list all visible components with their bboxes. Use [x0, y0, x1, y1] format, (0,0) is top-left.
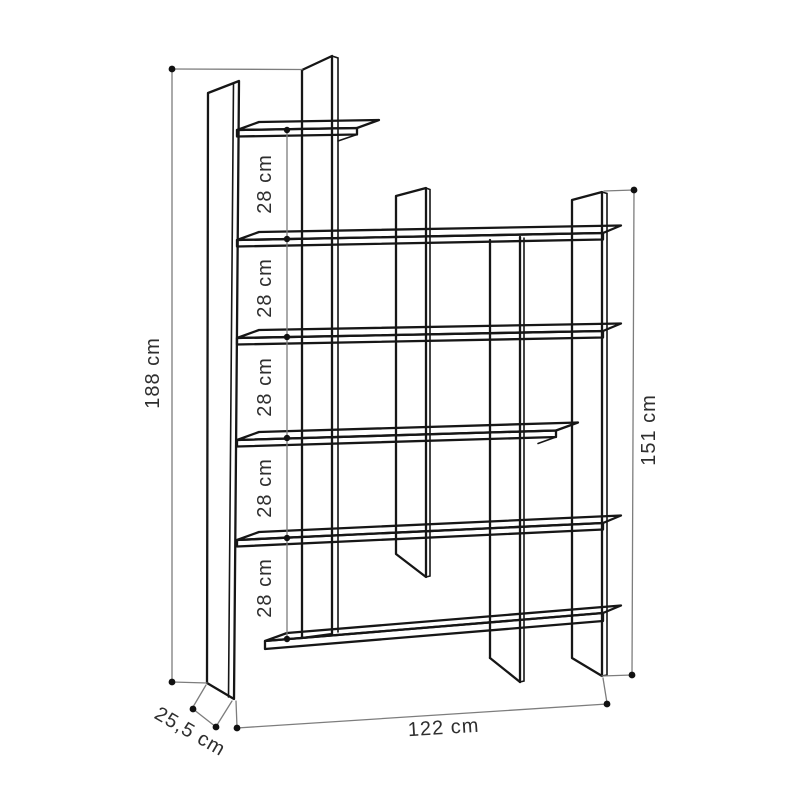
- dimension-dot: [213, 724, 220, 731]
- label-shelf-gap-4: 28 cm: [254, 458, 276, 517]
- shelf-row-4: [237, 423, 578, 447]
- dimension-dot: [284, 236, 290, 242]
- dimension-dot: [190, 706, 197, 713]
- dimension-dot: [284, 636, 290, 642]
- dimension-dot: [284, 334, 290, 340]
- label-right-height: 151 cm: [638, 394, 660, 466]
- label-shelf-gap-2: 28 cm: [254, 258, 276, 317]
- dimension-right-height: 151 cm: [602, 187, 660, 679]
- shelf-bottom: [265, 606, 621, 650]
- dimension-dot: [284, 127, 290, 133]
- dimension-shelf-spacing-chain: 28 cm 28 cm 28 cm 28 cm 28 cm: [254, 127, 290, 642]
- dimension-dot: [284, 435, 290, 441]
- label-depth: 25,5 cm: [151, 703, 230, 761]
- dimension-dot: [234, 725, 241, 732]
- shelves: [237, 120, 621, 649]
- dimension-dot: [604, 701, 611, 708]
- left-side-panel: [207, 81, 239, 699]
- dimension-total-height: 188 cm: [142, 66, 302, 686]
- label-shelf-gap-1: 28 cm: [254, 154, 276, 213]
- shelf-row-2: [237, 226, 621, 247]
- dimension-dot: [284, 535, 290, 541]
- label-shelf-gap-3: 28 cm: [254, 357, 276, 416]
- dimension-dot: [169, 679, 176, 686]
- dimension-dot: [629, 672, 636, 679]
- label-shelf-gap-5: 28 cm: [254, 558, 276, 617]
- mid-divider-panel: [396, 188, 430, 577]
- label-total-height: 188 cm: [142, 337, 164, 409]
- shelf-row-5: [237, 516, 621, 547]
- right-side-panel: [572, 192, 607, 676]
- dimension-width: 122 cm: [234, 678, 611, 741]
- shelf-top: [237, 120, 379, 141]
- dimension-dot: [631, 187, 638, 194]
- label-width: 122 cm: [407, 715, 480, 742]
- bookcase-diagram: 188 cm 28 cm 28 cm 28 cm 28 cm 28 cm 151…: [0, 0, 800, 800]
- dimension-dot: [169, 66, 176, 73]
- shelf-row-3: [237, 324, 621, 345]
- tall-divider-panel: [302, 56, 338, 638]
- dimension-depth: 25,5 cm: [151, 685, 232, 761]
- diagram-canvas: 188 cm 28 cm 28 cm 28 cm 28 cm 28 cm 151…: [0, 0, 800, 800]
